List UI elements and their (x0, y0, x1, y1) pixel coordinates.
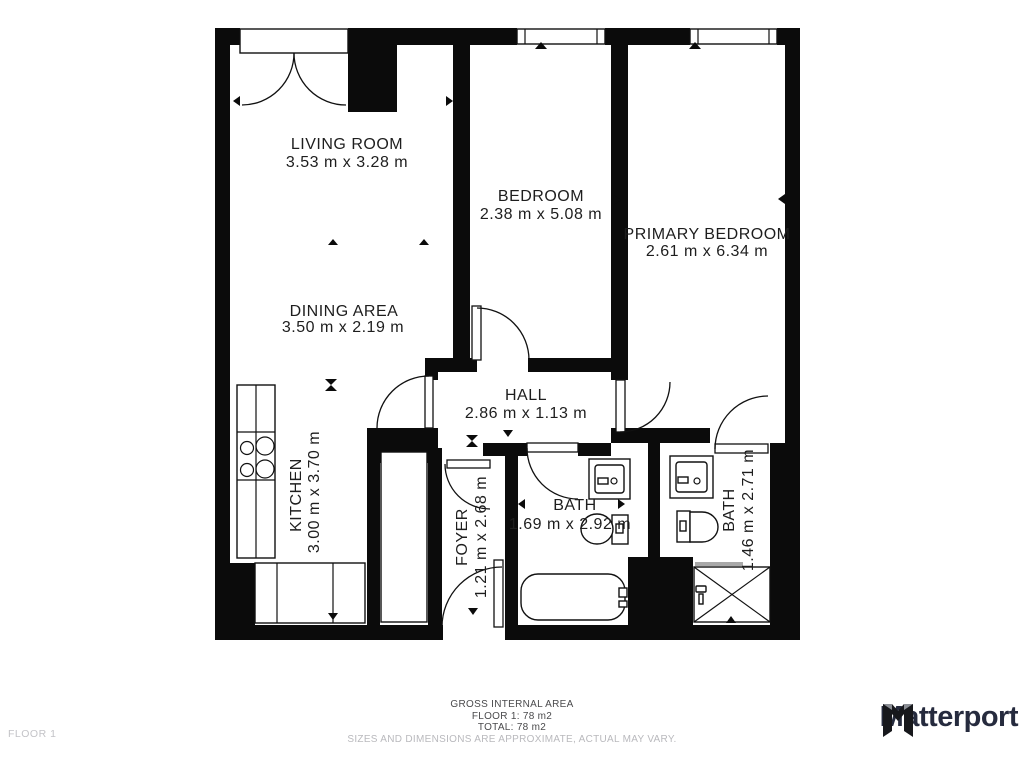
room-label-bath-1: BATH (553, 497, 596, 514)
toilet-button (680, 521, 686, 531)
wall-segment (428, 448, 442, 625)
floor-area-line: FLOOR 1: 78 m2 (282, 711, 742, 723)
wall-marker (468, 608, 478, 615)
shower-head (696, 586, 706, 592)
wall-marker (618, 499, 625, 509)
room-label-primary-bedroom: PRIMARY BEDROOM (624, 226, 791, 243)
balcony-door-threshold (240, 29, 348, 53)
wall-marker (446, 96, 453, 106)
kitchen-counter (255, 563, 365, 623)
door-leaf (425, 376, 433, 428)
door-swing-arc (377, 376, 429, 428)
balcony-door-swing-arc (242, 53, 294, 105)
wall-segment (425, 358, 477, 372)
disclaimer-text: SIZES AND DIMENSIONS ARE APPROXIMATE, AC… (282, 734, 742, 746)
balcony-door-swing-arc (294, 53, 346, 105)
wall-segment (215, 28, 230, 640)
floorplan-drawing: LIVING ROOM 3.53 m x 3.28 m BEDROOM 2.38… (0, 0, 1024, 768)
toilet-bowl (690, 512, 718, 542)
door-leaf (527, 443, 578, 452)
floorplan-page: LIVING ROOM 3.53 m x 3.28 m BEDROOM 2.38… (0, 0, 1024, 768)
room-dims-kitchen: 3.00 m x 3.70 m (306, 431, 323, 553)
door-leaf (472, 306, 481, 360)
room-dims-living-room: 3.53 m x 3.28 m (286, 154, 408, 171)
dimension-marker (466, 435, 478, 447)
entry-door-leaf (494, 560, 503, 627)
room-label-kitchen: KITCHEN (288, 458, 305, 532)
dimension-marker (325, 379, 337, 391)
matterport-branding: Matterport (880, 701, 1018, 734)
window (690, 29, 777, 44)
wall-segment (367, 447, 380, 625)
entry-door-swing-arc (442, 567, 502, 627)
wall-segment (648, 443, 660, 557)
area-summary: GROSS INTERNAL AREA FLOOR 1: 78 m2 TOTAL… (282, 699, 742, 745)
room-dims-primary-bedroom: 2.61 m x 6.34 m (646, 243, 768, 260)
wall-marker (518, 499, 525, 509)
total-area-line: TOTAL: 78 m2 (282, 722, 742, 734)
room-label-foyer: FOYER (454, 508, 471, 566)
room-dims-bedroom: 2.38 m x 5.08 m (480, 206, 602, 223)
wall-segment (628, 557, 693, 625)
wall-segment (770, 443, 785, 625)
wall-segment (505, 443, 518, 625)
shower-threshold (695, 562, 743, 566)
wall-segment (785, 28, 800, 640)
door-swing-arc (527, 448, 578, 499)
door-swing-arc (715, 396, 768, 449)
room-label-living-room: LIVING ROOM (291, 136, 403, 153)
bathtub-faucet (619, 588, 627, 597)
wall-segment (215, 625, 443, 640)
wall-segment (528, 358, 611, 372)
bathtub-faucet (619, 601, 627, 607)
room-label-dining-area: DINING AREA (290, 303, 399, 320)
wall-segment (453, 45, 470, 372)
wall-segment (611, 428, 710, 443)
room-label-hall: HALL (505, 387, 547, 404)
wall-segment (397, 28, 517, 45)
door-swing-arc (620, 382, 670, 432)
wall-marker (778, 194, 785, 204)
room-dims-bath-2: 1.46 m x 2.71 m (740, 449, 757, 571)
wall-marker (419, 239, 429, 245)
wall-marker (503, 430, 513, 437)
wall-segment (348, 28, 397, 112)
room-dims-bath-1: 1.69 m x 2.92 m (509, 516, 631, 533)
wall-segment (505, 625, 800, 640)
gross-internal-area-title: GROSS INTERNAL AREA (282, 699, 742, 711)
room-dims-foyer: 1.21 m x 2.68 m (473, 476, 490, 598)
door-swing-arc (477, 308, 529, 360)
wall-segment (230, 563, 255, 625)
wall-segment (578, 443, 611, 456)
bathtub (521, 574, 625, 620)
window (517, 29, 605, 44)
wall-marker (328, 239, 338, 245)
sink-handle (598, 478, 608, 484)
sink-handle (678, 477, 688, 483)
door-leaf (616, 380, 625, 432)
shower-head (699, 594, 703, 604)
room-label-bedroom: BEDROOM (498, 188, 584, 205)
wall-marker (233, 96, 240, 106)
wall-segment (611, 28, 628, 380)
matterport-logo-icon (880, 701, 916, 739)
room-dims-hall: 2.86 m x 1.13 m (465, 405, 587, 422)
room-dims-dining-area: 3.50 m x 2.19 m (282, 319, 404, 336)
room-label-bath-2: BATH (721, 488, 738, 531)
floor-selector-label: FLOOR 1 (8, 728, 56, 740)
wardrobe (381, 452, 427, 622)
door-leaf (447, 460, 490, 468)
